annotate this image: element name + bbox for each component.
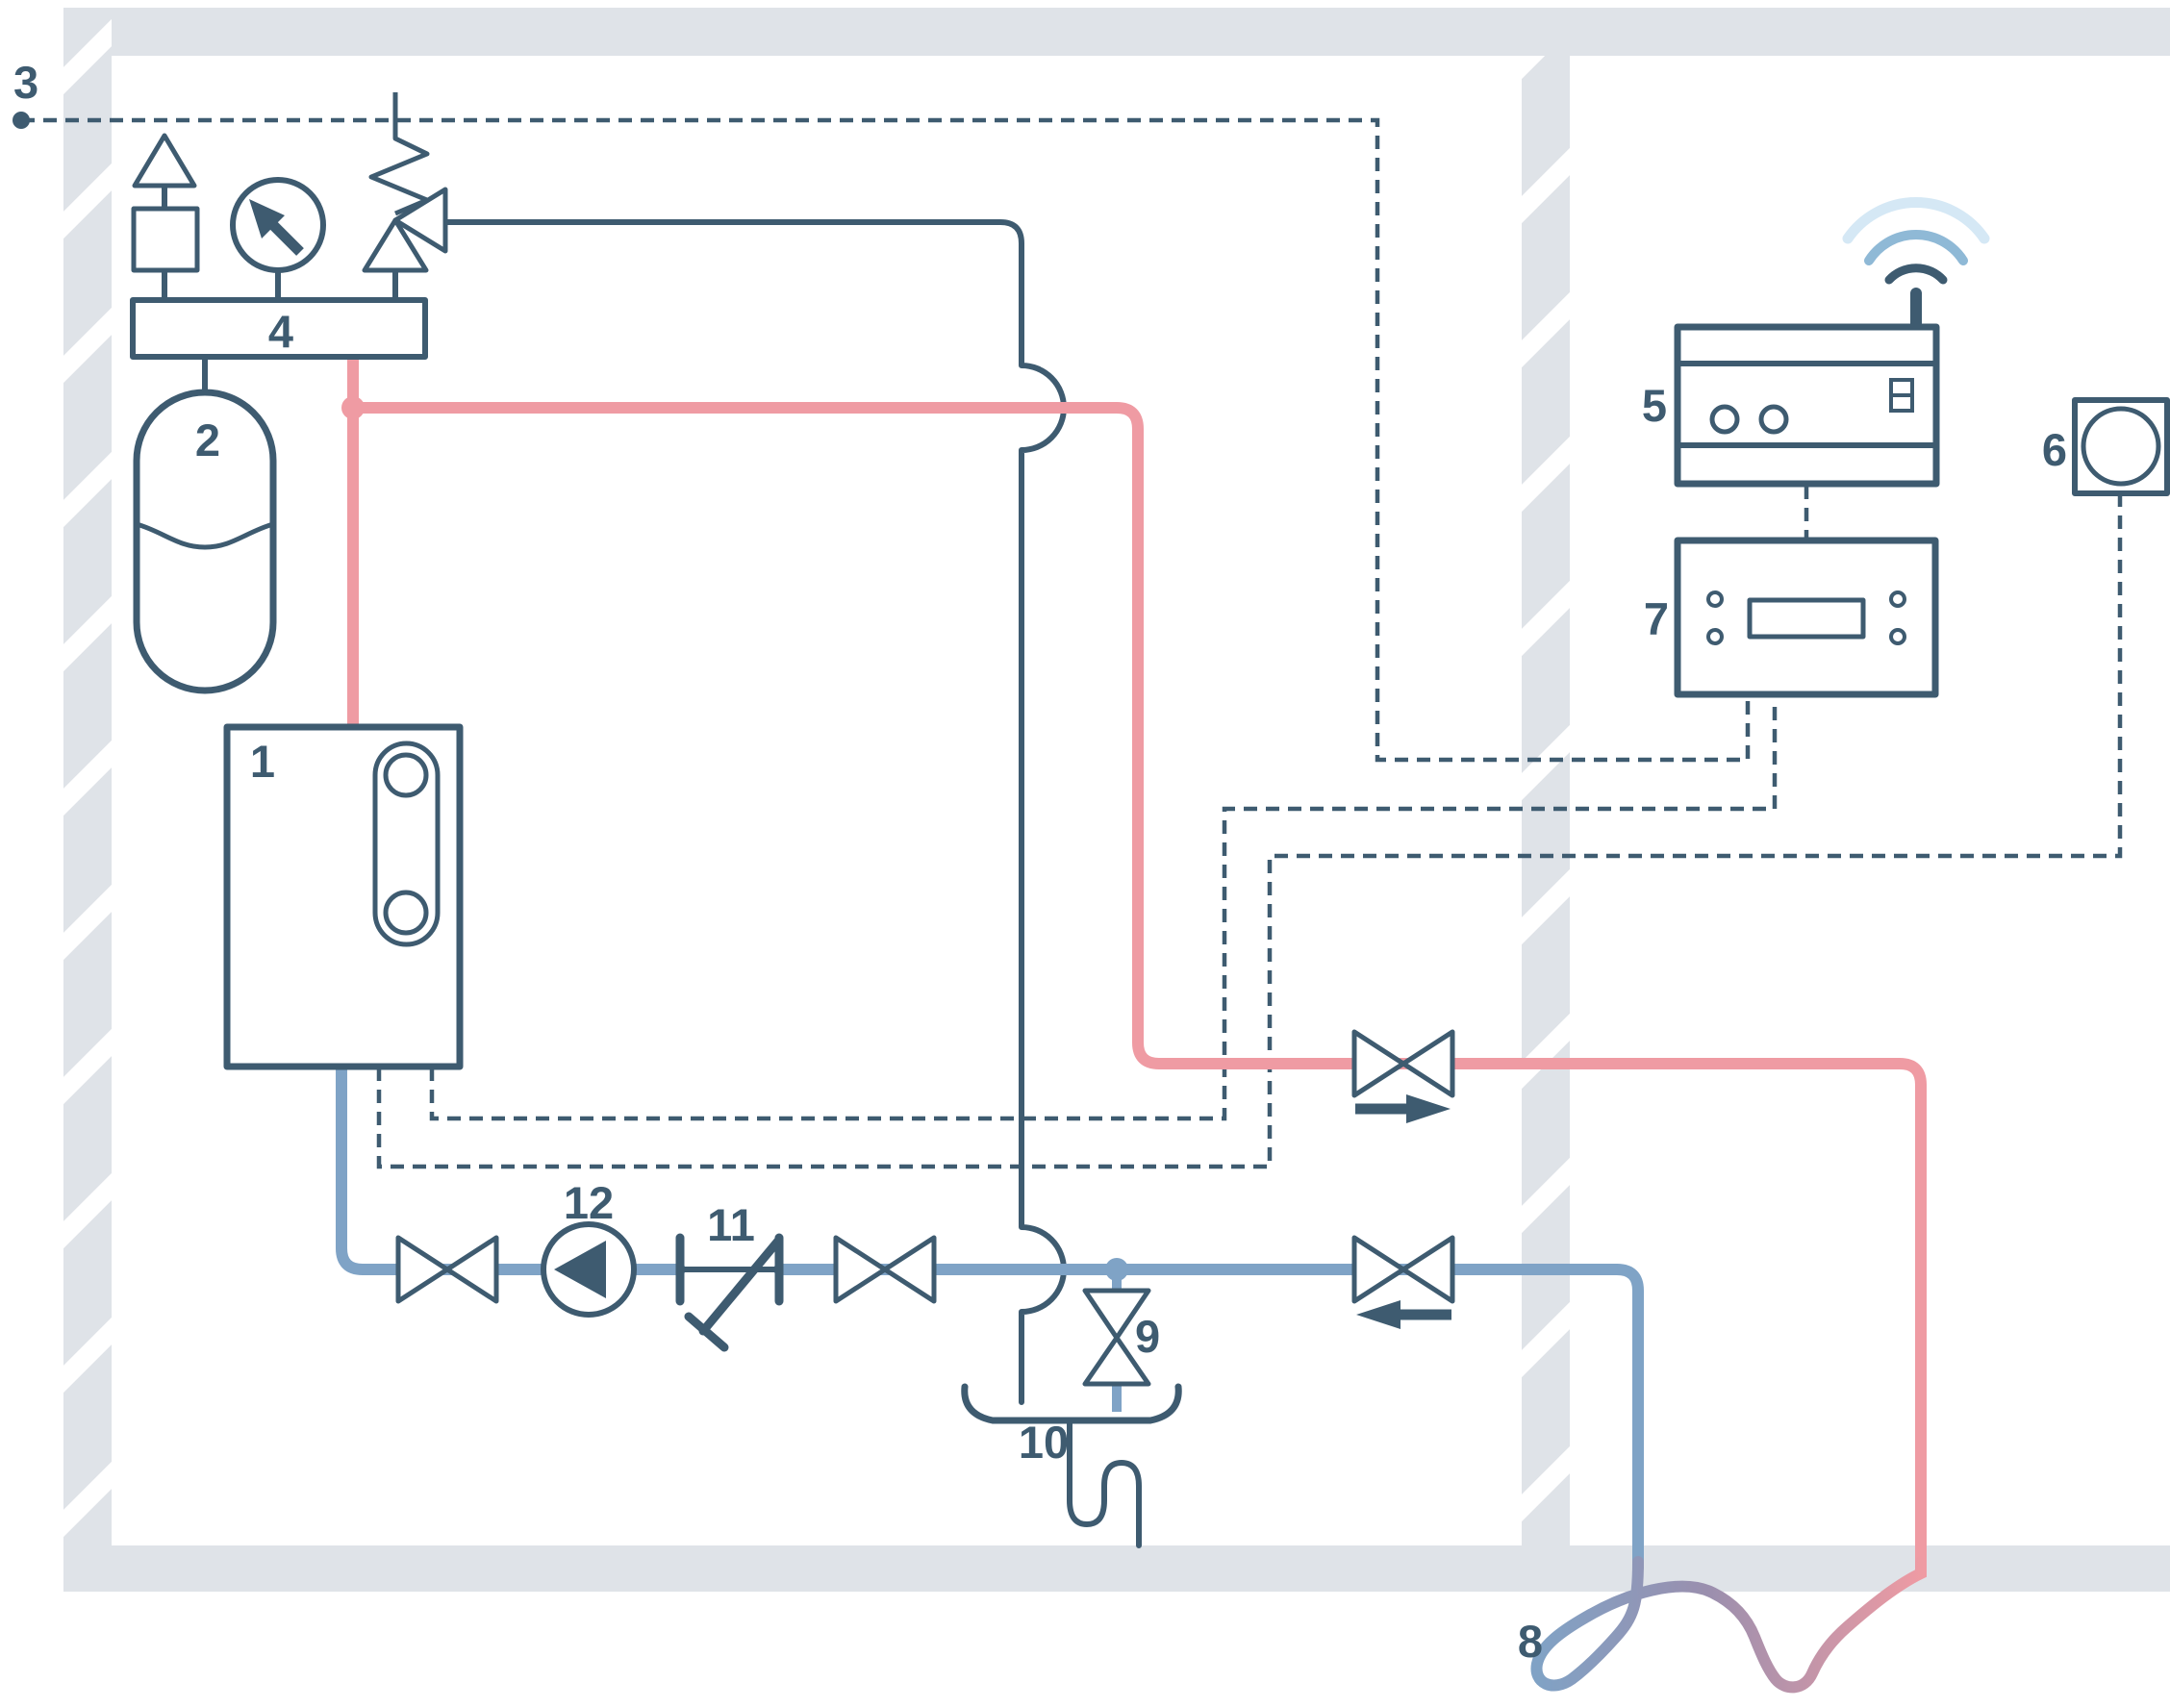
room-sensor-dial: [2083, 409, 2158, 484]
shutoff-valve-left: [398, 1238, 496, 1301]
hot-pipe-junction-dot: [341, 396, 365, 419]
room-sensor: [2075, 400, 2167, 493]
heating-schematic: 1 2 3 4 5 6 7 8 9 10 11 12: [0, 0, 2170, 1708]
label-check-valve: 11: [707, 1199, 755, 1250]
wall-floor: [63, 1545, 2170, 1592]
wifi-arc-middle-icon: [1869, 235, 1963, 261]
cold-pipe-right: [779, 1269, 1638, 1568]
shutoff-valve-icon: [885, 1238, 934, 1301]
label-outdoor-sensor: 3: [13, 57, 38, 108]
outdoor-sensor-dot: [13, 112, 30, 129]
shutoff-valve-icon: [398, 1238, 447, 1301]
supply-service-valve: [1354, 1032, 1452, 1123]
label-drain-funnel: 10: [1019, 1417, 1069, 1468]
label-safety-group: 4: [268, 306, 293, 357]
shutoff-valve-icon: [1354, 1032, 1403, 1095]
arrow-right-icon: [1406, 1094, 1451, 1123]
relief-spring-icon: [371, 92, 427, 213]
label-expansion-vessel: 2: [195, 414, 220, 465]
return-service-valve: [1354, 1238, 1452, 1329]
drain-funnel: [965, 1387, 1178, 1545]
diagram-stage: 1 2 3 4 5 6 7 8 9 10 11 12: [0, 0, 2170, 1708]
shutoff-valve-mid: [836, 1238, 934, 1301]
shutoff-valve-icon: [447, 1238, 496, 1301]
shutoff-valve-icon: [1403, 1032, 1452, 1095]
room-controller: [1678, 540, 1935, 694]
controller-button: [1891, 592, 1905, 606]
gateway-led-left: [1712, 407, 1737, 432]
arrow-left-icon: [1356, 1300, 1400, 1329]
label-drain-valve: 9: [1135, 1311, 1160, 1362]
siphon-trap-icon: [1070, 1420, 1139, 1545]
air-vent-icon: [135, 136, 194, 186]
label-floor-loop: 8: [1518, 1616, 1543, 1667]
circulation-pump: [543, 1224, 634, 1315]
shutoff-valve-icon: [1403, 1238, 1452, 1301]
label-room-sensor: 6: [2042, 424, 2067, 475]
label-circulation-pump: 12: [564, 1177, 614, 1228]
cold-pipe-junction-dot: [1105, 1258, 1128, 1281]
label-heat-generator: 1: [250, 736, 275, 787]
panel-dial-top: [386, 755, 426, 795]
shutoff-valve-icon: [836, 1238, 885, 1301]
wifi-arc-inner-icon: [1889, 268, 1943, 280]
shutoff-valve-icon: [1354, 1238, 1403, 1301]
label-room-controller: 7: [1644, 593, 1669, 644]
label-wireless-gateway: 5: [1642, 380, 1667, 431]
gateway-led-right: [1761, 407, 1786, 432]
air-vent-body: [134, 209, 197, 270]
controller-button: [1891, 630, 1905, 643]
funnel-body: [965, 1387, 1178, 1420]
controller-display: [1750, 600, 1863, 637]
wall-partition: [1522, 56, 1570, 1545]
check-valve-flap: [703, 1240, 779, 1331]
controller-button: [1708, 592, 1722, 606]
wireless-gateway: [1678, 203, 1984, 484]
wall-ceiling: [63, 8, 2170, 56]
wall-left: [63, 8, 112, 1592]
check-valve: [680, 1238, 779, 1347]
controller-button: [1708, 630, 1722, 643]
panel-dial-bottom: [386, 892, 426, 933]
